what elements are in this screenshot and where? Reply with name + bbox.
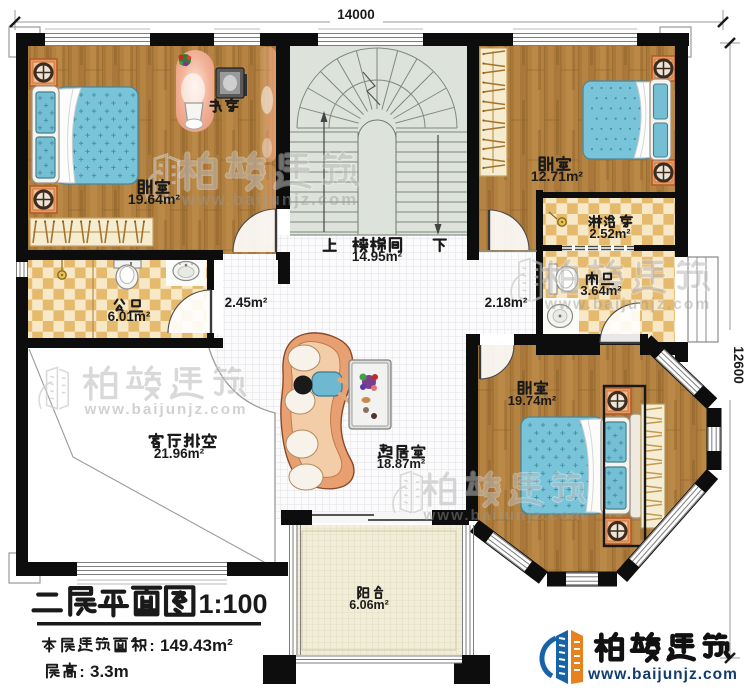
svg-text::: : — [149, 638, 154, 655]
svg-text:14000: 14000 — [337, 7, 375, 22]
svg-text:6.06m²: 6.06m² — [349, 598, 389, 612]
svg-text:12600: 12600 — [731, 346, 746, 384]
svg-text:6.01m²: 6.01m² — [108, 309, 151, 324]
svg-text:19.74m²: 19.74m² — [508, 393, 557, 408]
svg-text:21.96m²: 21.96m² — [154, 446, 205, 461]
svg-text:www.baijunjz.com: www.baijunjz.com — [587, 666, 738, 683]
svg-text:19.64m²: 19.64m² — [128, 191, 180, 207]
svg-text:www.baijunjz.com: www.baijunjz.com — [544, 296, 711, 313]
svg-text:3.64m²: 3.64m² — [580, 283, 622, 298]
svg-text:12.71m²: 12.71m² — [531, 168, 583, 184]
svg-text::: : — [79, 664, 84, 681]
svg-text:2.18m²: 2.18m² — [485, 295, 528, 310]
svg-text:2.45m²: 2.45m² — [225, 295, 268, 310]
svg-text:14.95m²: 14.95m² — [352, 249, 403, 264]
svg-text:www.baijunjz.com: www.baijunjz.com — [422, 507, 586, 524]
svg-text:1:100: 1:100 — [198, 589, 267, 619]
svg-text:www.baijunjz.com: www.baijunjz.com — [83, 401, 247, 418]
svg-text:149.43m²: 149.43m² — [160, 636, 233, 655]
svg-text:3.3m: 3.3m — [90, 662, 129, 681]
svg-text:www.baijunjz.com: www.baijunjz.com — [181, 190, 358, 209]
svg-text:18.87m²: 18.87m² — [377, 456, 426, 471]
svg-text:2.52m²: 2.52m² — [589, 226, 631, 241]
